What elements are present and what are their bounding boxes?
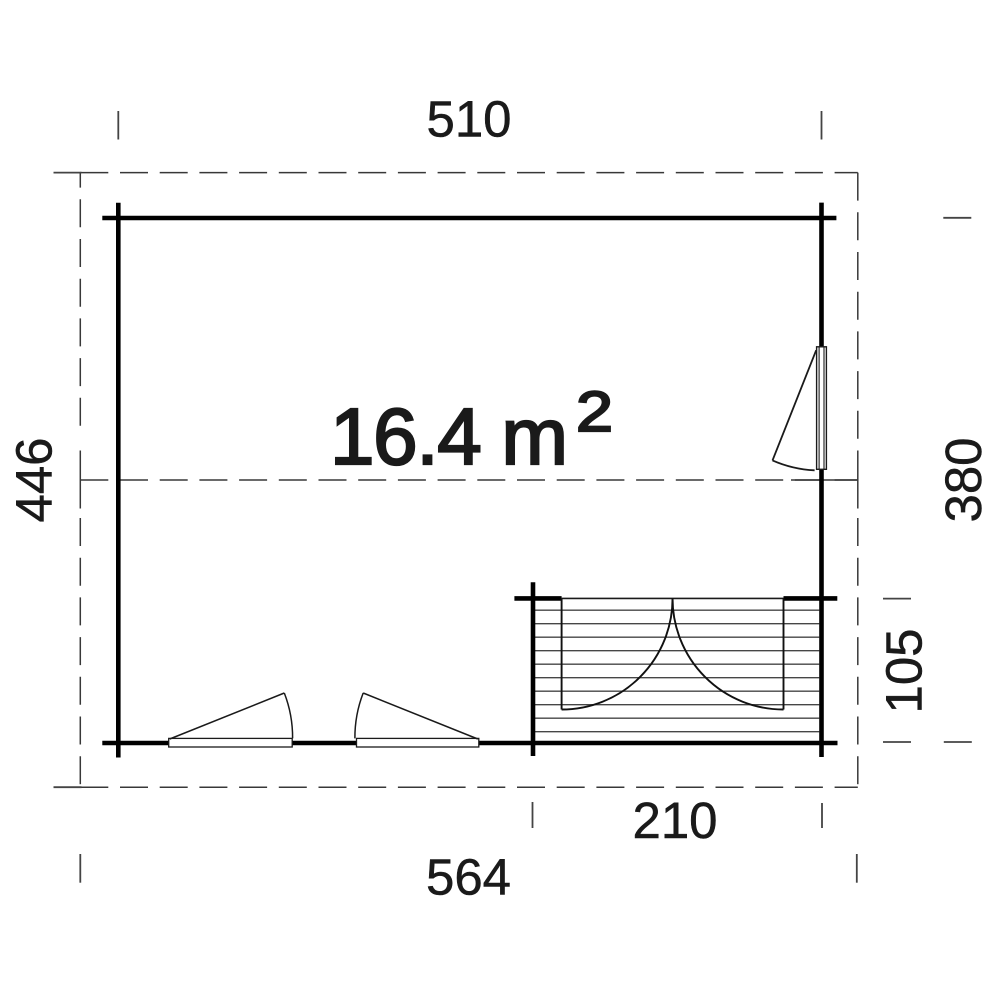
svg-text:16.4 m: 16.4 m: [330, 392, 568, 481]
svg-text:446: 446: [6, 437, 63, 522]
svg-text:564: 564: [426, 849, 511, 906]
svg-text:2: 2: [576, 380, 613, 444]
svg-text:105: 105: [876, 628, 933, 713]
svg-text:510: 510: [426, 91, 511, 148]
svg-text:210: 210: [632, 792, 717, 849]
svg-text:380: 380: [935, 437, 992, 522]
